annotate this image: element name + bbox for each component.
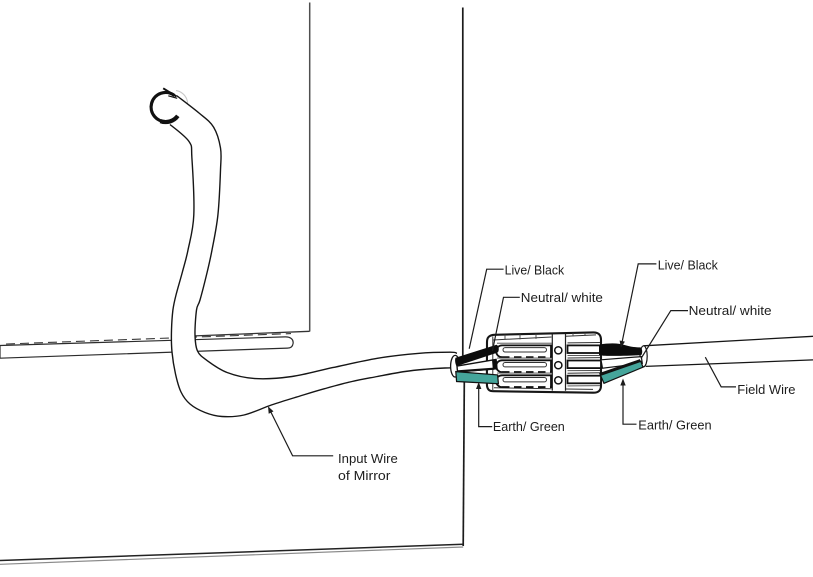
svg-text:of Mirror: of Mirror (338, 468, 391, 483)
svg-text:Input Wire: Input Wire (338, 451, 398, 466)
svg-text:Neutral/ white: Neutral/ white (689, 303, 772, 318)
svg-text:Field Wire: Field Wire (737, 382, 795, 397)
svg-text:Live/ Black: Live/ Black (505, 262, 565, 277)
svg-text:Neutral/ white: Neutral/ white (521, 290, 603, 305)
svg-text:Live/ Black: Live/ Black (658, 257, 719, 272)
svg-text:Earth/ Green: Earth/ Green (638, 418, 711, 433)
svg-text:Earth/ Green: Earth/ Green (493, 419, 565, 434)
